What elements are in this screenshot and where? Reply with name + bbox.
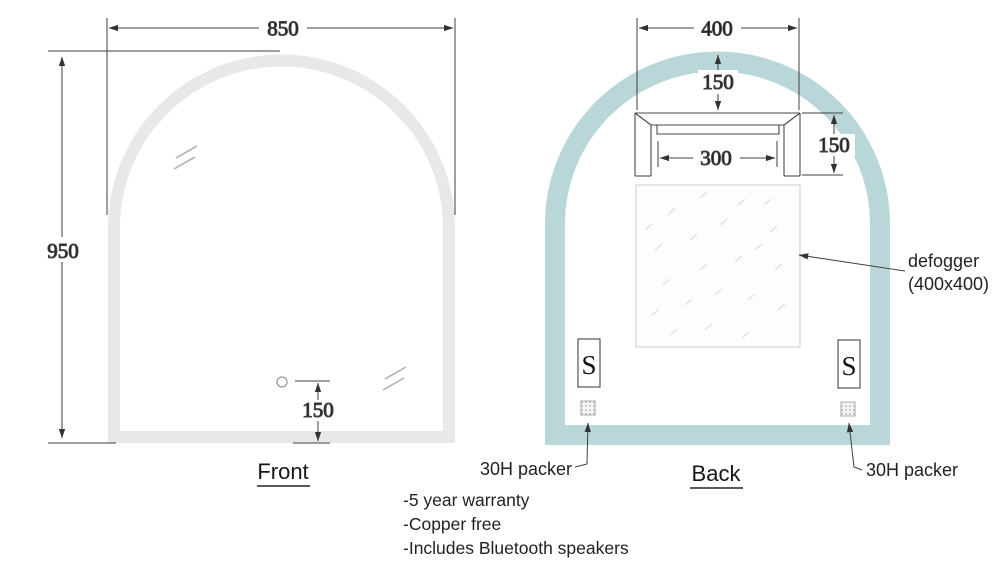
- front-caption: Front: [257, 459, 308, 484]
- packer-right: [841, 402, 855, 416]
- product-notes: -5 year warranty -Copper free -Includes …: [403, 490, 629, 558]
- note-copper-free: -Copper free: [403, 514, 501, 534]
- defogger-area: [636, 185, 800, 347]
- product-drawing: 850 950 150 Front 400: [0, 0, 1000, 562]
- speaker-left-letter: S: [581, 350, 596, 380]
- dim-150-right-label: 150: [818, 133, 850, 157]
- speaker-right-letter: S: [841, 351, 856, 381]
- front-view: 850 950 150 Front: [42, 16, 455, 486]
- packer-left-label: 30H packer: [480, 459, 572, 479]
- speaker-left: S: [578, 339, 600, 387]
- dim-850-label: 850: [267, 17, 299, 41]
- note-warranty: -5 year warranty: [403, 490, 530, 510]
- dim-150-front-label: 150: [302, 398, 334, 422]
- note-bluetooth: -Includes Bluetooth speakers: [403, 538, 629, 558]
- dim-400-label: 400: [701, 17, 733, 41]
- sensor-dot: [277, 377, 287, 387]
- packer-right-label: 30H packer: [866, 460, 958, 480]
- defogger-label-line1: defogger: [908, 251, 979, 271]
- defogger-label-line2: (400x400): [908, 274, 989, 294]
- speaker-right: S: [838, 340, 860, 388]
- dim-300-label: 300: [700, 146, 732, 170]
- diagram-canvas: 850 950 150 Front 400: [0, 0, 1000, 562]
- dim-950-label: 950: [47, 239, 79, 263]
- packer-left: [581, 401, 595, 415]
- back-view: 400 150 300: [480, 16, 989, 488]
- dim-150-top-label: 150: [702, 70, 734, 94]
- back-caption: Back: [692, 461, 742, 486]
